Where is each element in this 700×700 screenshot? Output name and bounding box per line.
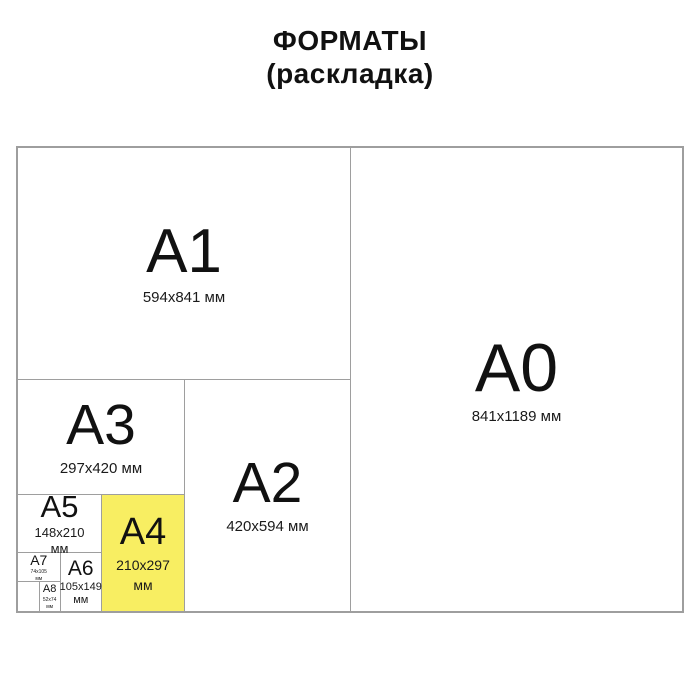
format-label-a1: A1 [146,221,222,283]
format-label-a8: A8 [43,584,56,595]
format-label-a5: A5 [41,491,79,522]
format-dims-a3: 297x420 мм [60,460,142,477]
format-box-a7: A7 74x105 мм [18,553,60,582]
format-dims-a0: 841x1189 мм [472,408,562,425]
format-box-a6: A6 105x149 мм [60,553,102,611]
page-title: ФОРМАТЫ (раскладка) [0,24,700,90]
format-label-a0: A0 [475,334,558,402]
format-dims-a2: 420x594 мм [226,518,308,535]
format-dims-a7: 74x105 [31,569,47,575]
format-label-a7: A7 [30,553,47,567]
format-box-a0: A0 841x1189 мм [350,148,682,611]
format-label-a6: A6 [68,558,94,579]
page-title-line-2: (раскладка) [0,57,700,90]
format-box-a8: A8 52x74 мм [39,582,60,611]
format-box-a1: A1 594x841 мм [18,148,350,380]
format-box-a2: A2 420x594 мм [184,380,350,612]
format-label-a4: A4 [120,513,166,551]
format-unit-a8: мм [46,604,53,610]
format-dims-a8: 52x74 [43,597,57,603]
format-box-a4: A4 210x297 мм [101,495,184,611]
page-title-line-1: ФОРМАТЫ [0,24,700,57]
format-label-a3: A3 [66,397,136,454]
format-label-a2: A2 [233,455,303,512]
format-dims-a5: 148x210 [35,525,85,540]
format-dims-a6: 105x149 [60,581,102,593]
format-dims-a4: 210x297 [116,557,170,573]
paper-formats-diagram: A1 594x841 мм A0 841x1189 мм A3 297x420 … [16,146,684,613]
format-unit-a6: мм [73,594,88,606]
format-unit-a7: мм [35,576,42,582]
format-box-a3: A3 297x420 мм [18,380,184,496]
format-box-a5: A5 148x210 мм [18,495,101,553]
format-unit-a4: мм [133,577,152,593]
format-dims-a1: 594x841 мм [143,289,225,306]
page: ФОРМАТЫ (раскладка) A1 594x841 мм A0 841… [0,0,700,700]
